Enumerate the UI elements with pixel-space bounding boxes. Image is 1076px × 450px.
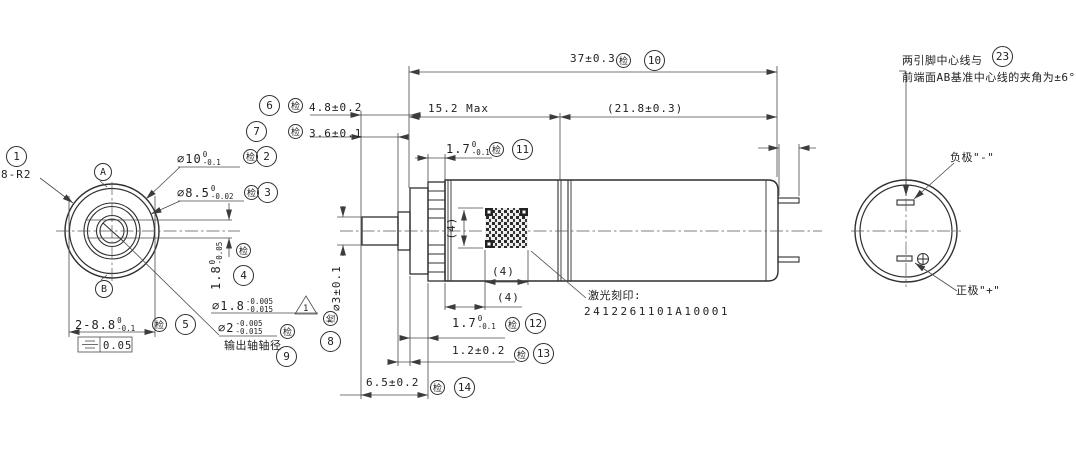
- crown-width-dim: 1.7 0-0.1: [446, 141, 490, 156]
- total-length-dim: 37±0.3: [570, 52, 616, 66]
- balloon-3: 3: [257, 182, 278, 203]
- inspection-mark: 检: [323, 311, 338, 326]
- balloon-14: 14: [454, 377, 475, 398]
- laser-mark-label: 激光刻印:: [588, 289, 641, 303]
- gear-section-dim: 15.2 Max: [428, 102, 489, 116]
- datum-b: B: [95, 280, 113, 298]
- inspection-mark: 检: [489, 142, 504, 157]
- balloon-7: 7: [246, 121, 267, 142]
- shaft-length-dim: 3.6±0.1: [309, 127, 362, 141]
- balloon-11: 11: [512, 139, 533, 160]
- balloon-1: 1: [6, 146, 27, 167]
- boss-height-dim: 1.8 0-0.05: [209, 230, 223, 290]
- inspection-mark: 检: [236, 243, 251, 258]
- positive-screw-mark: [918, 254, 929, 265]
- positive-terminal-label: 正极"+": [956, 284, 1000, 298]
- inspection-mark: 检: [514, 347, 529, 362]
- qr-offset-dim: (4): [497, 291, 520, 305]
- balloon-6: 6: [259, 95, 280, 116]
- shaft-note: 输出轴轴径: [224, 339, 282, 353]
- symmetry-tolerance: 0.05: [103, 339, 132, 353]
- front-boss-dim: 4.8±0.2: [309, 101, 362, 115]
- collar-width-dim: 1.2±0.2: [452, 344, 505, 358]
- pin-angle-note-line1: 两引脚中心线与: [902, 54, 983, 68]
- balloon-12: 12: [525, 313, 546, 334]
- qr-height-dim: (4): [445, 211, 459, 245]
- inspection-mark: 检: [616, 53, 631, 68]
- negative-terminal-label: 负极"-": [950, 151, 994, 165]
- dia10-dim: ⌀10 0-0.1: [177, 151, 221, 166]
- balloon-2: 2: [256, 146, 277, 167]
- side-view-outline: [362, 180, 799, 281]
- side-view-dimensions: [310, 66, 816, 399]
- shaft-dia-dim: ⌀2 -0.005-0.015: [218, 320, 263, 335]
- qr-code: [485, 208, 528, 248]
- shaft-od-dim: ⌀3±0.1: [330, 247, 344, 311]
- engineering-drawing: 1 检 2 检 3 检 4 检 5 6 检 7 检 检 8 检 9 检 10 检…: [0, 0, 1076, 450]
- datum-a: A: [94, 163, 112, 181]
- laser-mark-code: 2412261101A10001: [584, 305, 730, 319]
- inspection-mark: 检: [505, 317, 520, 332]
- inspection-mark: 检: [288, 124, 303, 139]
- balloon-4: 4: [233, 265, 254, 286]
- motor-section-dim: (21.8±0.3): [607, 102, 683, 116]
- inspection-mark: 检: [288, 98, 303, 113]
- inspection-mark: 检: [280, 324, 295, 339]
- across-flats-dim: 2-8.8 0-0.1: [75, 317, 135, 332]
- qr-width-dim: (4): [492, 265, 515, 279]
- dia85-dim: ⌀8.5 0-0.02: [177, 185, 233, 200]
- flange-width-dim: 1.7 0-0.1: [452, 315, 496, 330]
- balloon-13: 13: [533, 343, 554, 364]
- front-length-dim: 6.5±0.2: [366, 376, 419, 390]
- balloon-5: 5: [175, 314, 196, 335]
- balloon-8: 8: [320, 331, 341, 352]
- inspection-mark: 检: [430, 380, 445, 395]
- inspection-mark: 检: [152, 317, 167, 332]
- shaft-fit-dim: ⌀1.8 -0.005-0.015: [212, 298, 273, 313]
- pin-angle-note-line2: 前端面AB基准中心线的夹角为±6°: [902, 71, 1076, 85]
- flag-note-1: 1: [303, 302, 308, 316]
- balloon-10: 10: [644, 50, 665, 71]
- corner-radius-dim: 8-R2: [1, 168, 32, 182]
- balloon-23: 23: [992, 46, 1013, 67]
